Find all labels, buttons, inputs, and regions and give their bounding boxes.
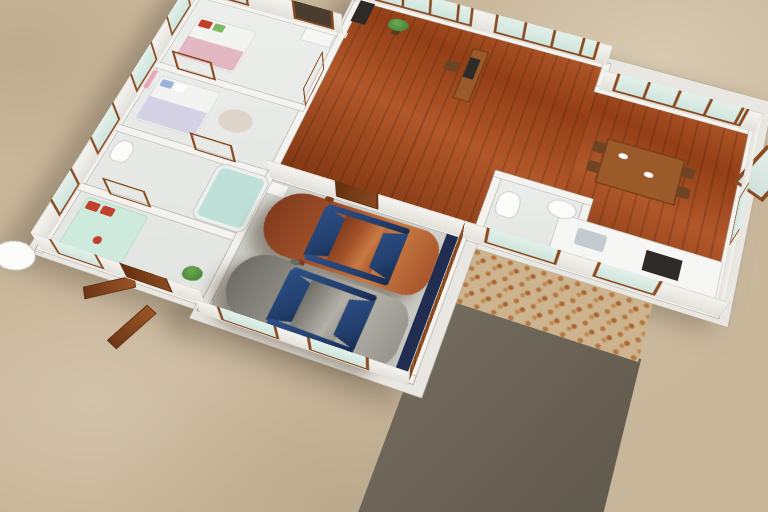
swung-open-door: [107, 305, 157, 350]
sand-ground: [0, 0, 768, 512]
scene-3d: [0, 0, 768, 512]
house-plan: [0, 0, 768, 512]
side-mirror: [324, 196, 334, 203]
